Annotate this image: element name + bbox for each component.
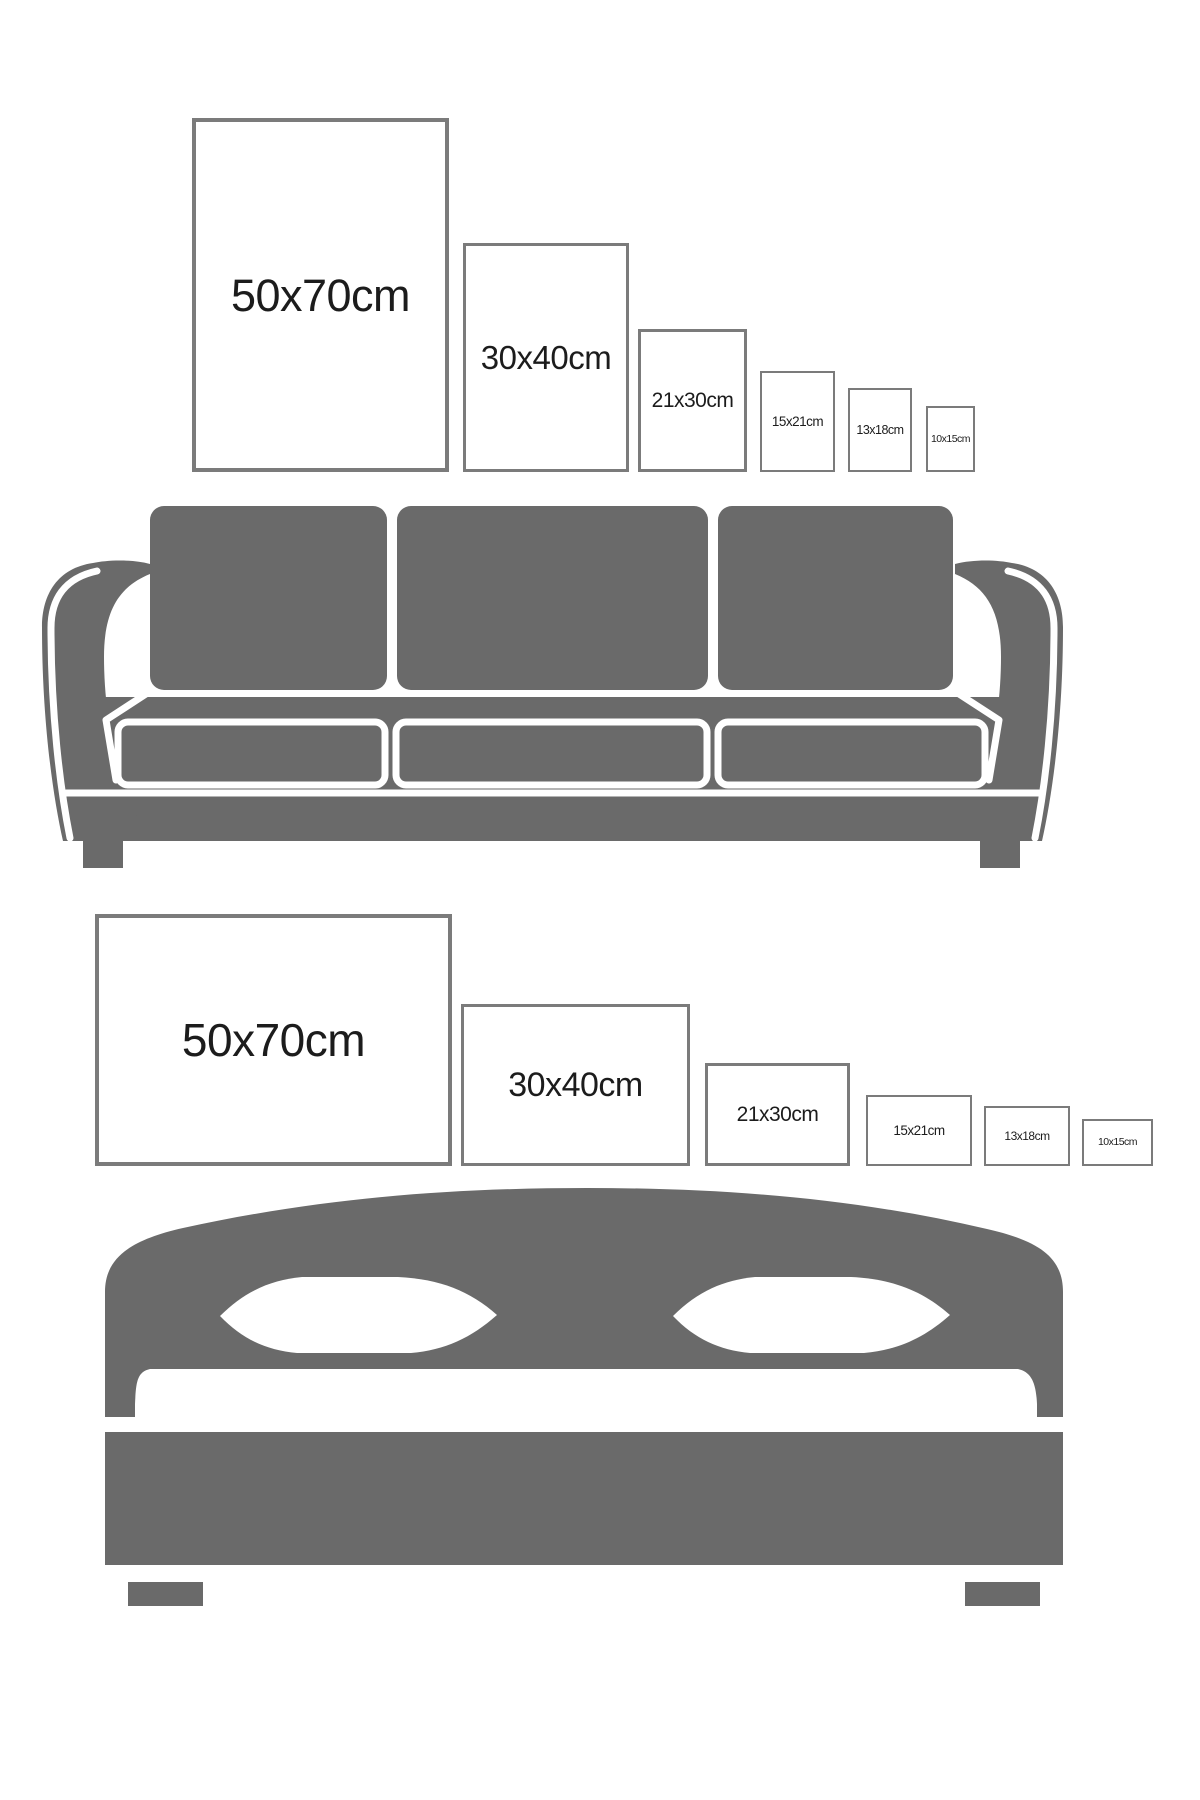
frame-portrait-15x21: 15x21cm xyxy=(760,371,835,472)
sofa-seat-cushion-left xyxy=(118,722,385,785)
frame-label: 13x18cm xyxy=(856,424,903,437)
frame-label: 15x21cm xyxy=(772,415,823,429)
frame-landscape-13x18: 13x18cm xyxy=(984,1106,1070,1166)
sofa-back-cushion-left xyxy=(150,506,387,690)
frame-portrait-50x70: 50x70cm xyxy=(192,118,449,472)
frame-label: 10x15cm xyxy=(1098,1137,1137,1148)
sofa-back-cushion-right xyxy=(718,506,953,690)
frame-landscape-30x40: 30x40cm xyxy=(461,1004,690,1166)
frame-label: 30x40cm xyxy=(508,1068,642,1102)
sofa-back-cushion-middle xyxy=(397,506,708,690)
frame-portrait-10x15: 10x15cm xyxy=(926,406,975,472)
frame-label: 10x15cm xyxy=(931,434,970,445)
bed-foot-left xyxy=(128,1582,203,1606)
frame-label: 21x30cm xyxy=(737,1104,819,1125)
frame-label: 13x18cm xyxy=(1004,1130,1049,1142)
bed-illustration xyxy=(105,1188,1063,1606)
sofa-foot-right xyxy=(980,841,1020,868)
sofa-illustration xyxy=(42,506,1063,868)
bed-base xyxy=(105,1432,1063,1565)
sofa-seat-cushion-right xyxy=(718,722,985,785)
frame-label: 21x30cm xyxy=(652,390,734,411)
frame-landscape-50x70: 50x70cm xyxy=(95,914,452,1166)
sofa-foot-left xyxy=(83,841,123,868)
frame-landscape-15x21: 15x21cm xyxy=(866,1095,972,1166)
frame-portrait-13x18: 13x18cm xyxy=(848,388,912,472)
frame-label: 15x21cm xyxy=(893,1124,944,1138)
frame-landscape-21x30: 21x30cm xyxy=(705,1063,850,1166)
size-guide-page: 50x70cm 30x40cm 21x30cm 15x21cm 13x18cm … xyxy=(0,0,1200,1800)
frame-label: 50x70cm xyxy=(182,1017,365,1063)
frame-label: 30x40cm xyxy=(481,341,611,374)
frame-portrait-21x30: 21x30cm xyxy=(638,329,747,472)
frame-portrait-30x40: 30x40cm xyxy=(463,243,629,472)
bed-foot-right xyxy=(965,1582,1040,1606)
frame-landscape-10x15: 10x15cm xyxy=(1082,1119,1153,1166)
sofa-seat-cushion-middle xyxy=(396,722,707,785)
frame-label: 50x70cm xyxy=(231,273,410,318)
